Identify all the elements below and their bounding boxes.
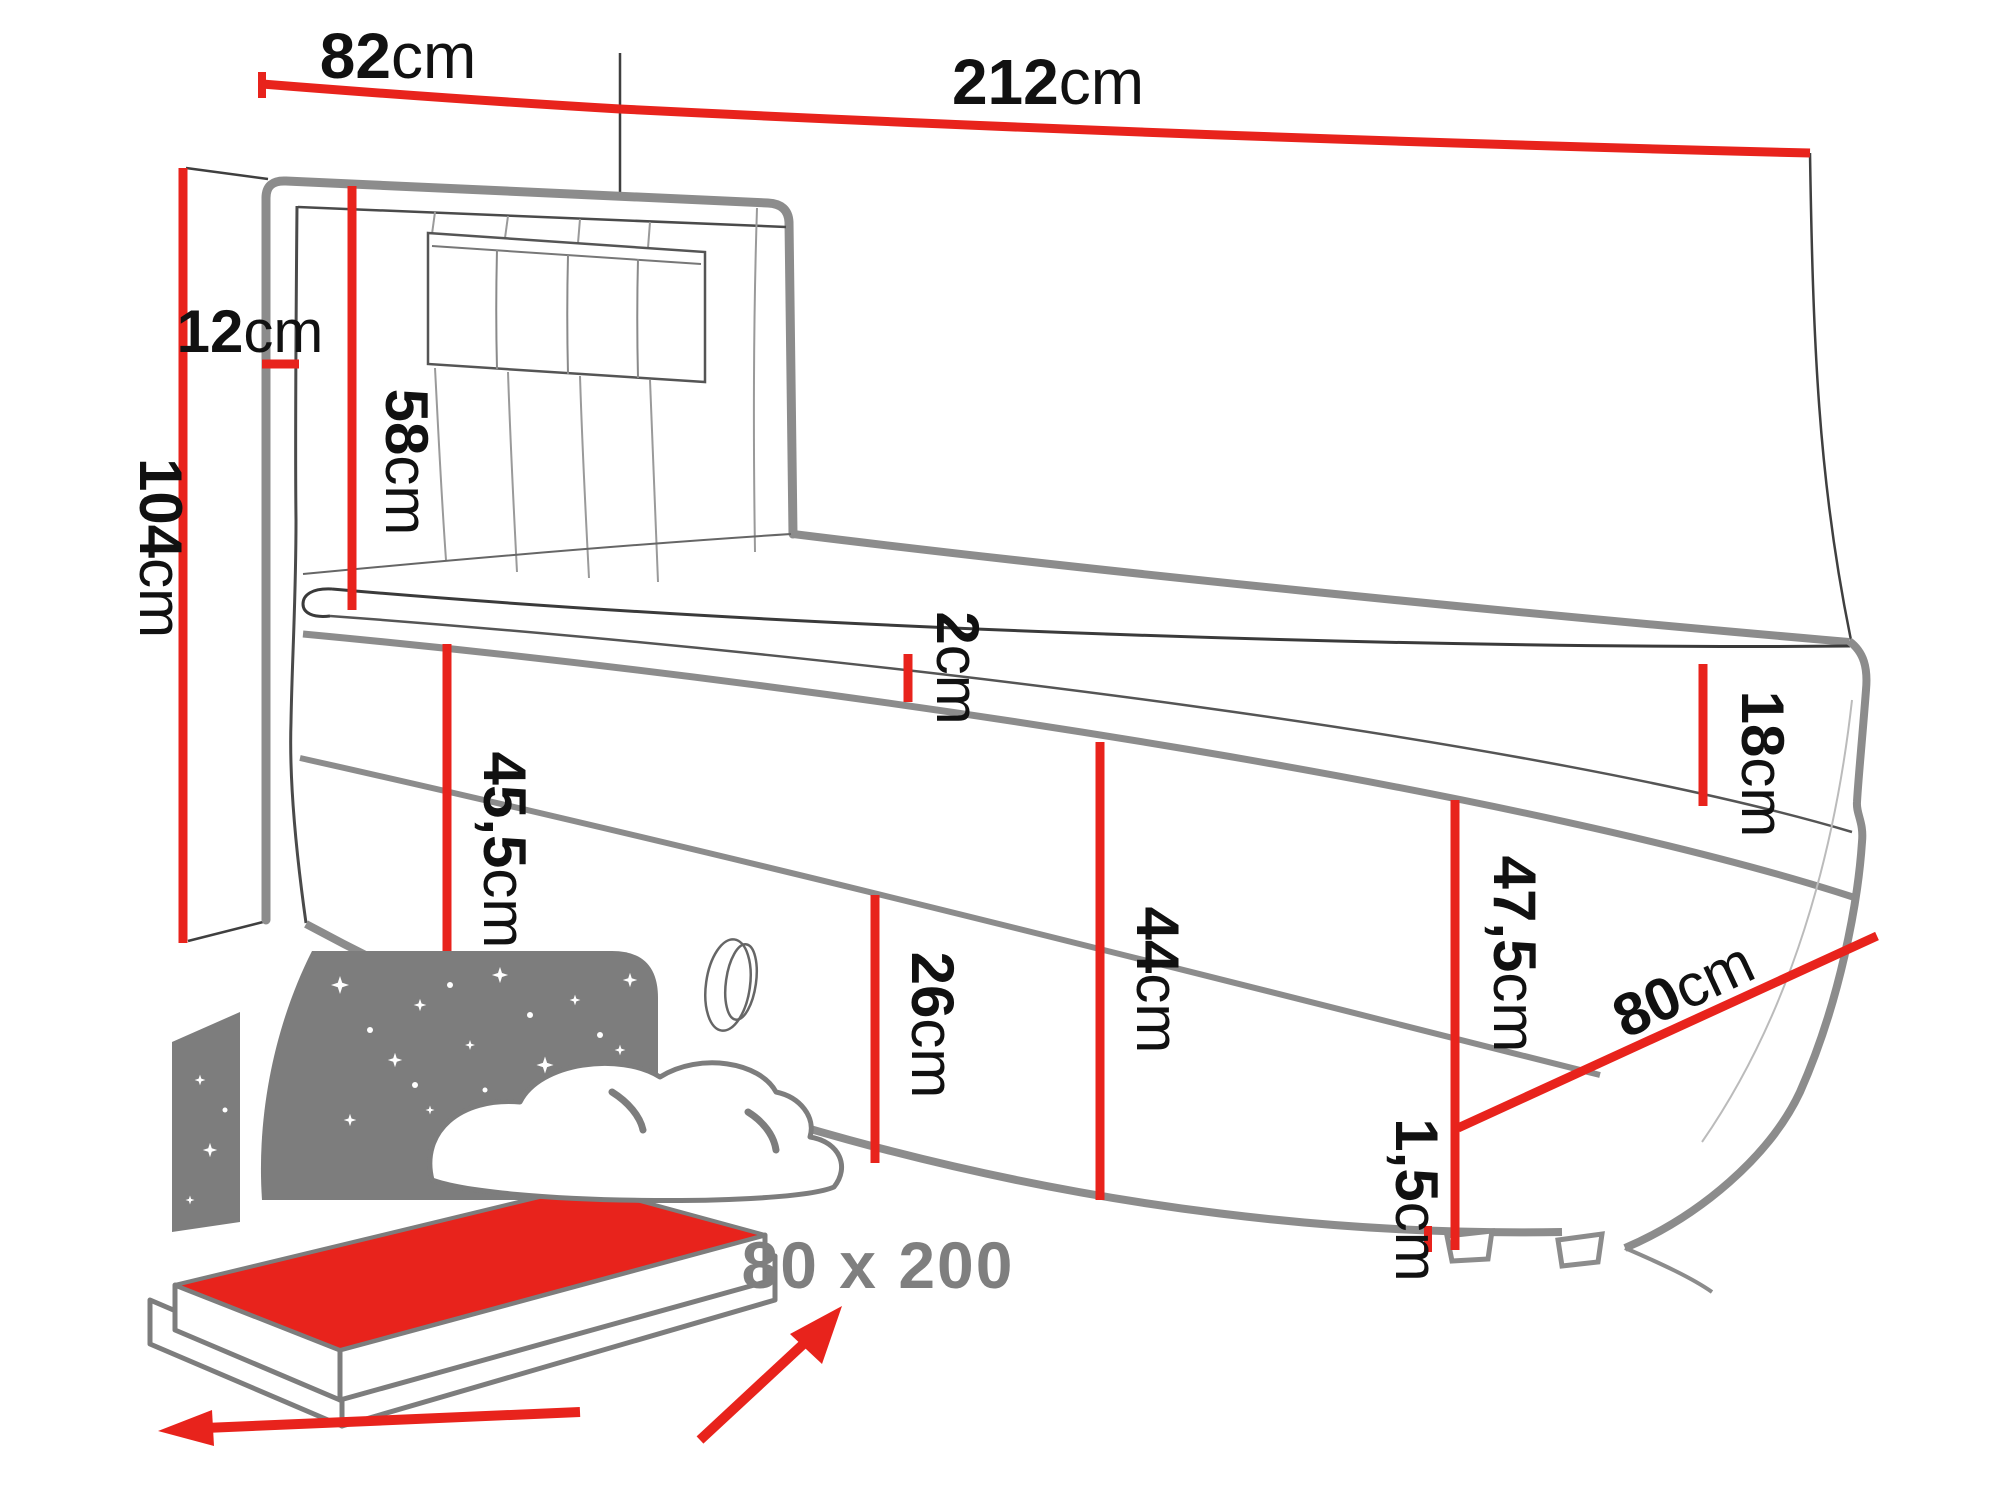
label-size-80x200: 80 x 200 [742, 1228, 1015, 1302]
label-12cm: 12cm [177, 298, 324, 365]
label-80cm: 80cm [1603, 928, 1764, 1051]
label-47-5cm: 47,5cm [1481, 856, 1548, 1053]
extension-line-foot-corner [1810, 153, 1851, 640]
label-82cm: 82cm [320, 20, 477, 92]
bed-foot-right [1558, 1234, 1602, 1266]
topper-seam-line [330, 616, 1852, 832]
label-18cm: 18cm [1729, 691, 1796, 838]
floor-line-left [188, 922, 263, 941]
dimension-diagram: 82cm 212cm 104cm 12cm 58cm 2cm 45,5cm 26… [0, 0, 2000, 1500]
label-45-5cm: 45,5cm [471, 752, 538, 949]
mattress-headboard-junction [303, 534, 791, 574]
extension-line-headboard-top [186, 168, 268, 179]
bed-drawing-svg: 82cm 212cm 104cm 12cm 58cm 2cm 45,5cm 26… [0, 0, 2000, 1500]
headboard-inset-panel [428, 233, 705, 382]
dimension-line-212cm [620, 109, 1810, 153]
icon-width-arrow-line [205, 1412, 580, 1428]
icon-length-arrow-line [700, 1336, 812, 1440]
label-104cm: 104cm [127, 458, 194, 638]
label-1-5cm: 1,5cm [1383, 1118, 1450, 1281]
mattress-top-front-edge [332, 589, 1850, 647]
icon-panel-small [172, 1012, 240, 1232]
drawer-handle-loop [700, 936, 761, 1033]
floor-line-right [1625, 1248, 1712, 1292]
label-212cm: 212cm [952, 46, 1144, 118]
headboard-front-top-edge [298, 207, 786, 227]
mattress-corner-head [303, 589, 332, 617]
icon-width-arrow-head [158, 1410, 214, 1446]
headboard-panel-seams [496, 250, 638, 378]
headboard-tufting-seams [432, 208, 757, 582]
bed-size-icon: 80 x 200 [0, 951, 1014, 1446]
label-26cm: 26cm [899, 952, 966, 1099]
label-2cm: 2cm [924, 611, 991, 724]
label-44cm: 44cm [1124, 907, 1191, 1054]
label-58cm: 58cm [373, 389, 440, 536]
